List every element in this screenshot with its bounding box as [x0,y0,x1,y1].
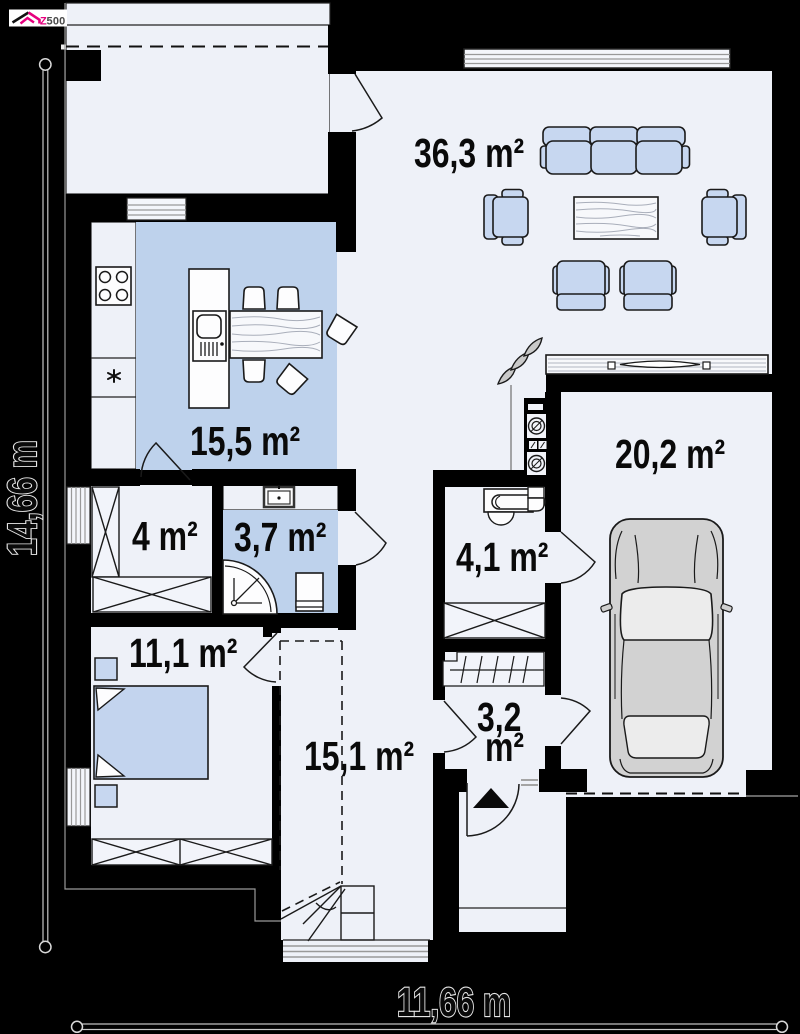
svg-text:20,2 m²: 20,2 m² [615,431,725,477]
svg-text:15,5 m²: 15,5 m² [190,418,300,464]
svg-text:36,3 m²: 36,3 m² [414,130,524,176]
svg-text:500: 500 [47,16,66,28]
svg-text:11,66 m: 11,66 m [397,979,511,1025]
svg-text:14,66 m: 14,66 m [0,440,45,556]
svg-text:4,1 m²: 4,1 m² [456,534,548,580]
svg-text:4 m²: 4 m² [132,513,198,559]
svg-text:m²: m² [485,724,524,770]
svg-text:3,7 m²: 3,7 m² [234,514,326,560]
svg-text:15,1 m²: 15,1 m² [304,733,414,779]
svg-text:11,1 m²: 11,1 m² [129,630,237,676]
